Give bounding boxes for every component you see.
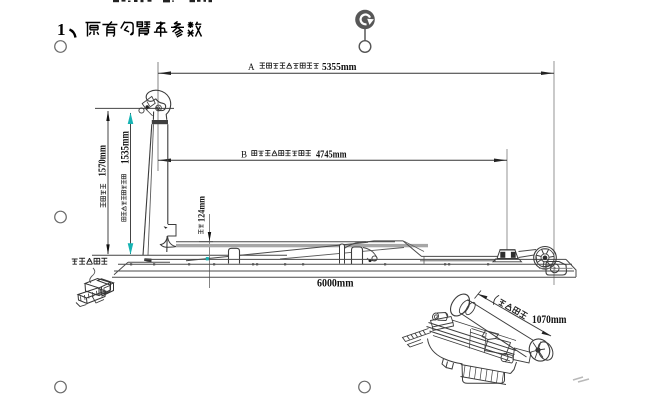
- svg-text:B: B: [241, 150, 247, 160]
- svg-text:A: A: [248, 62, 255, 72]
- svg-text:5355mm: 5355mm: [322, 62, 357, 73]
- svg-text:1: 1: [57, 20, 66, 39]
- svg-text:1570mm: 1570mm: [97, 145, 109, 177]
- svg-text:1070mm: 1070mm: [532, 314, 567, 326]
- svg-text:4745mm: 4745mm: [316, 150, 347, 161]
- svg-text:6000mm: 6000mm: [317, 278, 354, 290]
- svg-text:124mm: 124mm: [198, 196, 208, 222]
- svg-text:1535mm: 1535mm: [120, 131, 132, 164]
